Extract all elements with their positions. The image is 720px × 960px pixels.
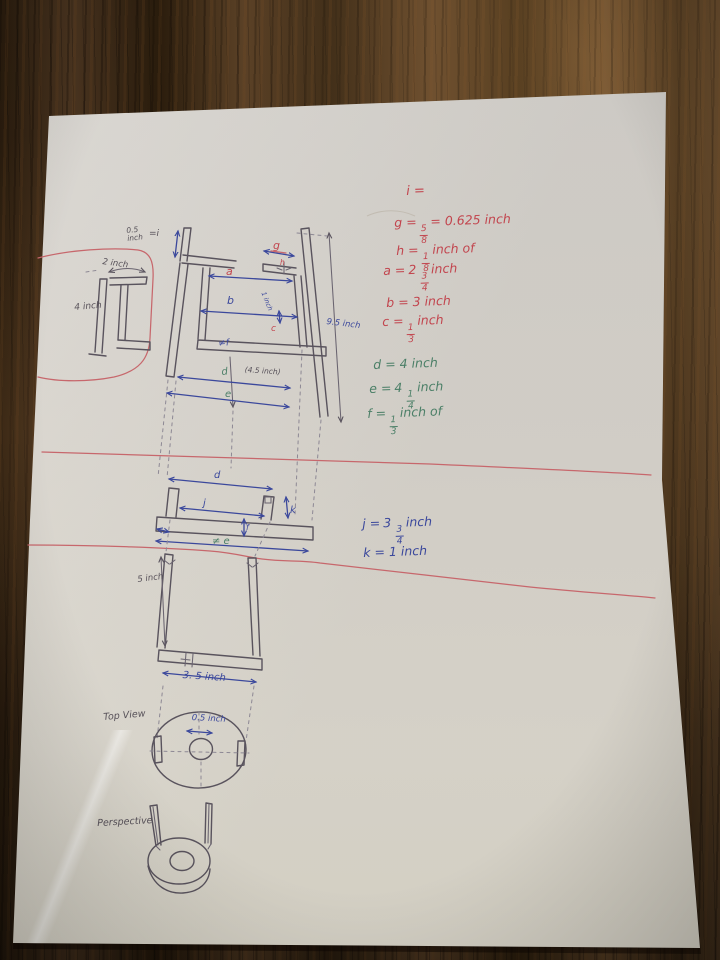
dim-arrow-d2 xyxy=(169,479,272,489)
legend-k: k = 1 inch xyxy=(363,543,427,560)
legend-b-post: 3 inch xyxy=(412,293,451,309)
side-detail-sketch xyxy=(38,249,153,381)
dim-arrow-i xyxy=(175,231,178,257)
front-c-label: c xyxy=(271,325,276,335)
front-b-label: b xyxy=(227,295,234,307)
perspective-sketch xyxy=(148,803,212,893)
legend-g-pre: g = xyxy=(394,214,417,230)
legend-g-post: = 0.625 inch xyxy=(430,211,511,229)
dim-arrow-j xyxy=(180,508,264,516)
dim-arrow-c xyxy=(279,311,280,323)
sketch-ink-layer xyxy=(0,0,720,960)
fraction-1-3b: 13 xyxy=(389,416,397,437)
legend-i: i = xyxy=(406,183,425,199)
legend-c-post: inch xyxy=(417,312,444,328)
front-d-label: d xyxy=(221,367,228,378)
front-f-mark: ≠f xyxy=(218,339,229,349)
legend-c-pre: c = xyxy=(382,313,404,329)
dim-arrow-k xyxy=(286,497,288,518)
section-d-label: d xyxy=(214,471,220,482)
legend-b-pre: b = xyxy=(386,294,409,310)
legend-d: d = 4 inch xyxy=(373,355,438,372)
red-marker-lines xyxy=(28,452,655,598)
legend-h-pre: h = xyxy=(396,242,419,258)
front-i-mark: =i xyxy=(149,230,159,240)
legend-j-post: inch xyxy=(406,514,433,530)
top-view-hole-label: 0.5 inch xyxy=(192,714,226,725)
legend-e-pre: e = xyxy=(369,380,392,396)
front-a-label: a xyxy=(226,266,233,278)
legend-d-pre: d = xyxy=(373,356,396,372)
legend-k-pre: k = xyxy=(363,544,385,560)
front-h-label: h xyxy=(280,259,285,267)
legend-f: f =13inch of xyxy=(367,403,443,438)
legend-e-post: inch xyxy=(417,378,444,394)
legend-b: b = 3 inch xyxy=(386,293,451,310)
legend-i-text: i = xyxy=(406,183,425,199)
section-e-mark: ≠ e xyxy=(212,537,230,548)
legend-d-post: 4 inch xyxy=(399,355,438,371)
section-k-label: k xyxy=(290,506,296,517)
legend-c: c =13inch xyxy=(382,312,444,346)
section-f-label: f xyxy=(246,524,249,533)
legend-j-pre: j = xyxy=(362,515,380,531)
fraction-3-4: 34 xyxy=(420,272,428,293)
section-view-sketch xyxy=(156,479,313,556)
photo-of-hand-drawn-plan: i = g =58= 0.625 inch h =18inch of a =23… xyxy=(0,0,720,960)
legend-a: a =234inch xyxy=(383,260,458,295)
fraction-1-3: 13 xyxy=(407,324,415,345)
section-j-label: j xyxy=(203,499,206,510)
red-circle-annotation xyxy=(38,249,153,381)
dim-arrow-d xyxy=(178,377,290,388)
dim-arrow-b xyxy=(201,311,297,317)
legend-a-pre: a = xyxy=(383,262,406,278)
legend-f-post: inch of xyxy=(400,403,443,419)
front-e-label: e xyxy=(225,390,231,401)
dim-arrow-a xyxy=(209,276,292,281)
legend-a-post: inch xyxy=(431,260,458,276)
front-05-note: 0.5 inch xyxy=(126,225,143,243)
legend-h-post: inch of xyxy=(432,240,475,256)
dim-arrow-hole xyxy=(187,731,212,733)
front-g-label: g xyxy=(273,240,280,252)
legend-k-post: 1 inch xyxy=(389,543,428,559)
legend-f-pre: f = xyxy=(367,405,386,421)
